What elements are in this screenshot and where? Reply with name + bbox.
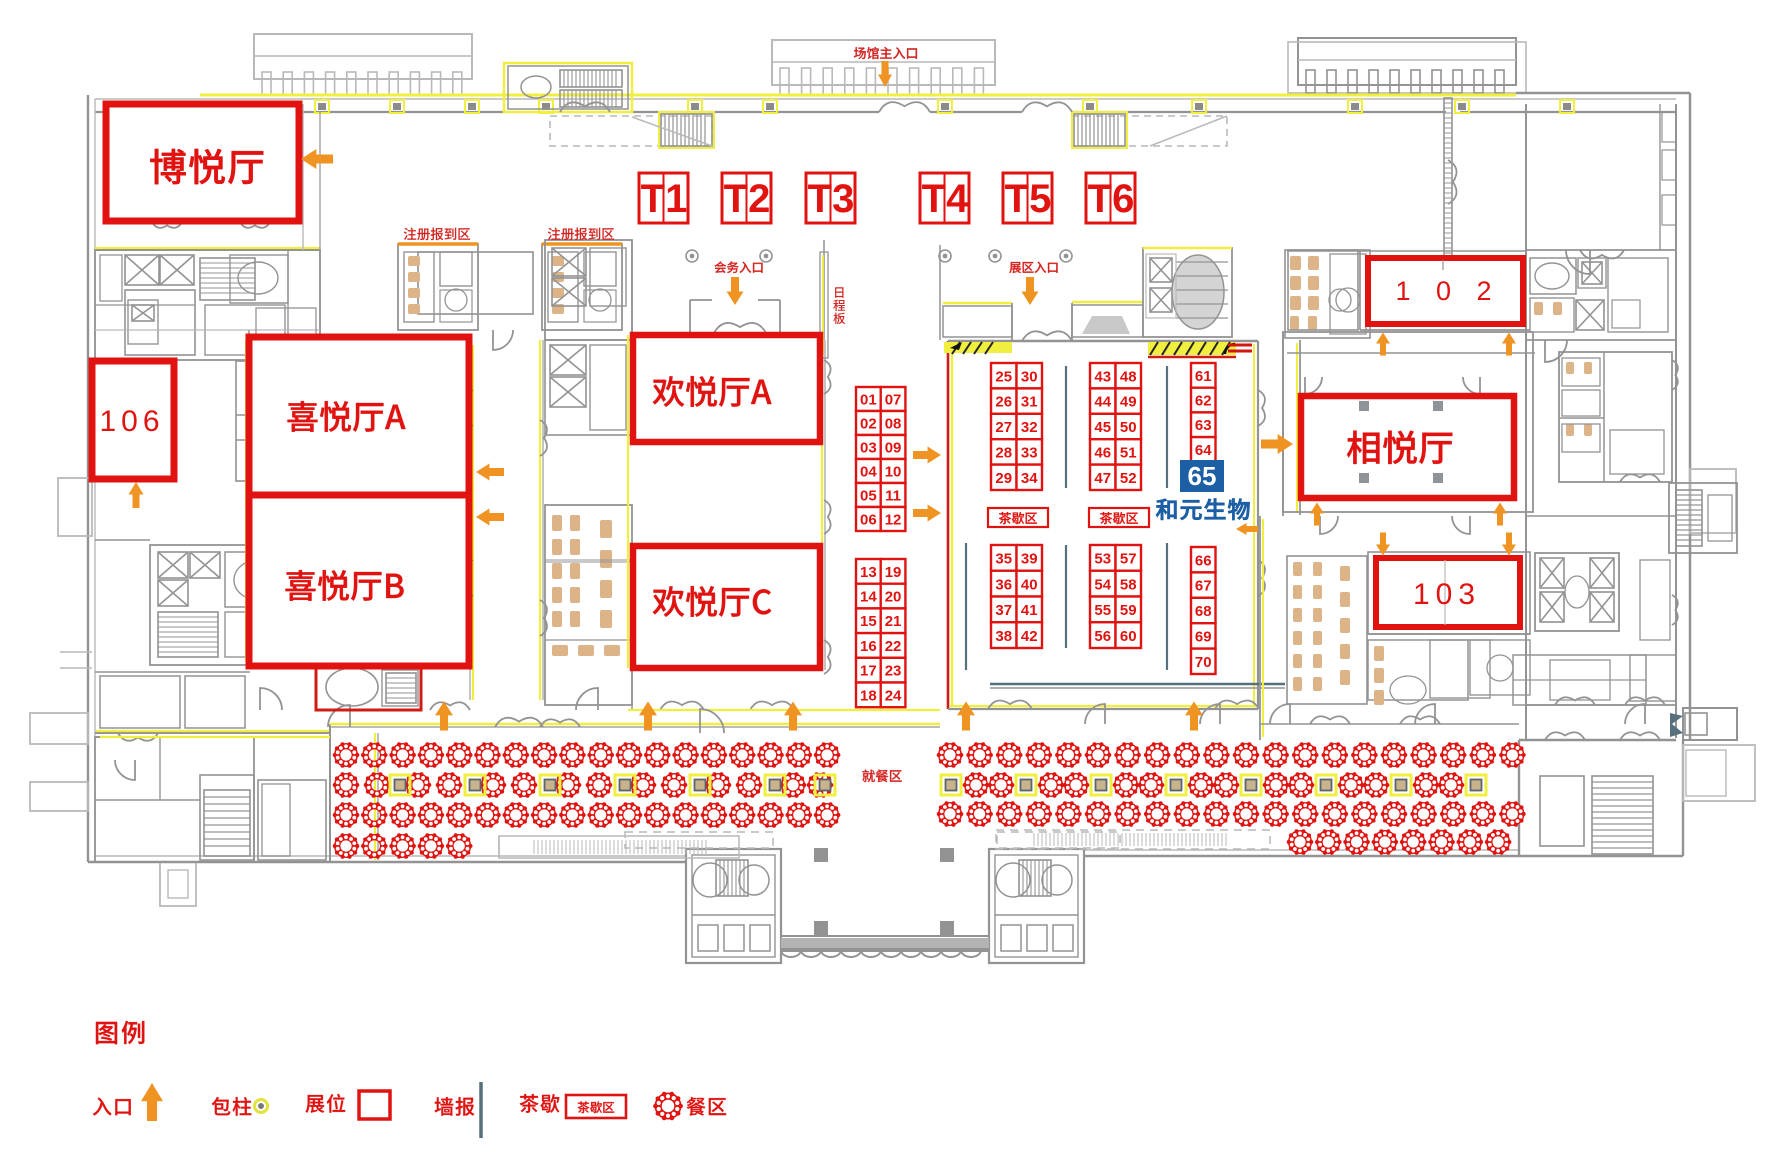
svg-text:29: 29 <box>995 470 1012 487</box>
svg-text:13: 13 <box>860 564 877 581</box>
svg-text:12: 12 <box>885 511 902 528</box>
svg-text:31: 31 <box>1021 394 1038 411</box>
svg-text:38: 38 <box>995 628 1012 645</box>
svg-text:T4: T4 <box>922 177 969 221</box>
svg-text:T2: T2 <box>724 177 771 221</box>
svg-text:22: 22 <box>885 638 902 655</box>
svg-text:25: 25 <box>995 368 1012 385</box>
svg-text:27: 27 <box>995 419 1012 436</box>
svg-text:32: 32 <box>1021 419 1038 436</box>
svg-text:39: 39 <box>1021 551 1038 568</box>
svg-text:24: 24 <box>885 687 902 704</box>
svg-text:03: 03 <box>860 439 877 456</box>
svg-text:18: 18 <box>860 687 877 704</box>
svg-text:44: 44 <box>1094 394 1111 411</box>
svg-text:56: 56 <box>1094 628 1111 645</box>
svg-text:69: 69 <box>1195 628 1212 645</box>
svg-text:08: 08 <box>885 415 902 432</box>
svg-text:T6: T6 <box>1088 177 1135 221</box>
svg-text:67: 67 <box>1195 578 1212 595</box>
svg-text:01: 01 <box>860 391 877 408</box>
svg-text:68: 68 <box>1195 603 1212 620</box>
svg-text:45: 45 <box>1094 419 1111 436</box>
svg-text:51: 51 <box>1120 444 1137 461</box>
svg-text:T3: T3 <box>808 177 855 221</box>
svg-text:37: 37 <box>995 602 1012 619</box>
svg-text:60: 60 <box>1120 628 1137 645</box>
svg-text:53: 53 <box>1094 551 1111 568</box>
svg-text:10: 10 <box>885 463 902 480</box>
svg-text:70: 70 <box>1195 654 1212 671</box>
svg-text:14: 14 <box>860 588 877 605</box>
svg-text:48: 48 <box>1120 368 1137 385</box>
svg-text:54: 54 <box>1094 576 1111 593</box>
svg-text:57: 57 <box>1120 551 1137 568</box>
svg-text:65: 65 <box>1188 461 1217 491</box>
svg-text:11: 11 <box>885 487 901 504</box>
svg-text:21: 21 <box>885 613 902 630</box>
svg-text:66: 66 <box>1195 552 1212 569</box>
svg-text:41: 41 <box>1021 602 1038 619</box>
svg-text:64: 64 <box>1195 442 1212 459</box>
svg-text:05: 05 <box>860 487 877 504</box>
svg-text:43: 43 <box>1094 368 1111 385</box>
svg-text:15: 15 <box>860 613 877 630</box>
svg-text:23: 23 <box>885 663 902 680</box>
svg-text:09: 09 <box>885 439 902 456</box>
svg-text:50: 50 <box>1120 419 1137 436</box>
svg-text:30: 30 <box>1021 368 1038 385</box>
svg-text:28: 28 <box>995 444 1012 461</box>
svg-text:106: 106 <box>99 405 164 438</box>
svg-text:20: 20 <box>885 588 902 605</box>
svg-text:55: 55 <box>1094 602 1111 619</box>
svg-text:T5: T5 <box>1005 177 1052 221</box>
svg-text:49: 49 <box>1120 394 1137 411</box>
svg-text:47: 47 <box>1094 470 1111 487</box>
svg-text:T1: T1 <box>641 177 688 221</box>
svg-text:34: 34 <box>1021 470 1038 487</box>
svg-text:61: 61 <box>1195 368 1212 385</box>
svg-text:06: 06 <box>860 511 877 528</box>
svg-text:36: 36 <box>995 576 1012 593</box>
svg-text:17: 17 <box>860 663 877 680</box>
svg-text:46: 46 <box>1094 444 1111 461</box>
svg-text:103: 103 <box>1413 578 1481 611</box>
svg-text:42: 42 <box>1021 628 1038 645</box>
svg-text:19: 19 <box>885 564 902 581</box>
svg-text:1 0 2: 1 0 2 <box>1395 276 1500 306</box>
svg-text:40: 40 <box>1021 576 1038 593</box>
svg-text:52: 52 <box>1120 470 1137 487</box>
svg-text:07: 07 <box>885 391 902 408</box>
svg-text:33: 33 <box>1021 444 1038 461</box>
svg-text:26: 26 <box>995 394 1012 411</box>
svg-text:04: 04 <box>860 463 877 480</box>
svg-text:35: 35 <box>995 551 1012 568</box>
svg-text:62: 62 <box>1195 392 1212 409</box>
svg-text:02: 02 <box>860 415 877 432</box>
svg-text:16: 16 <box>860 638 877 655</box>
svg-text:63: 63 <box>1195 417 1212 434</box>
svg-text:58: 58 <box>1120 576 1137 593</box>
svg-text:59: 59 <box>1120 602 1137 619</box>
